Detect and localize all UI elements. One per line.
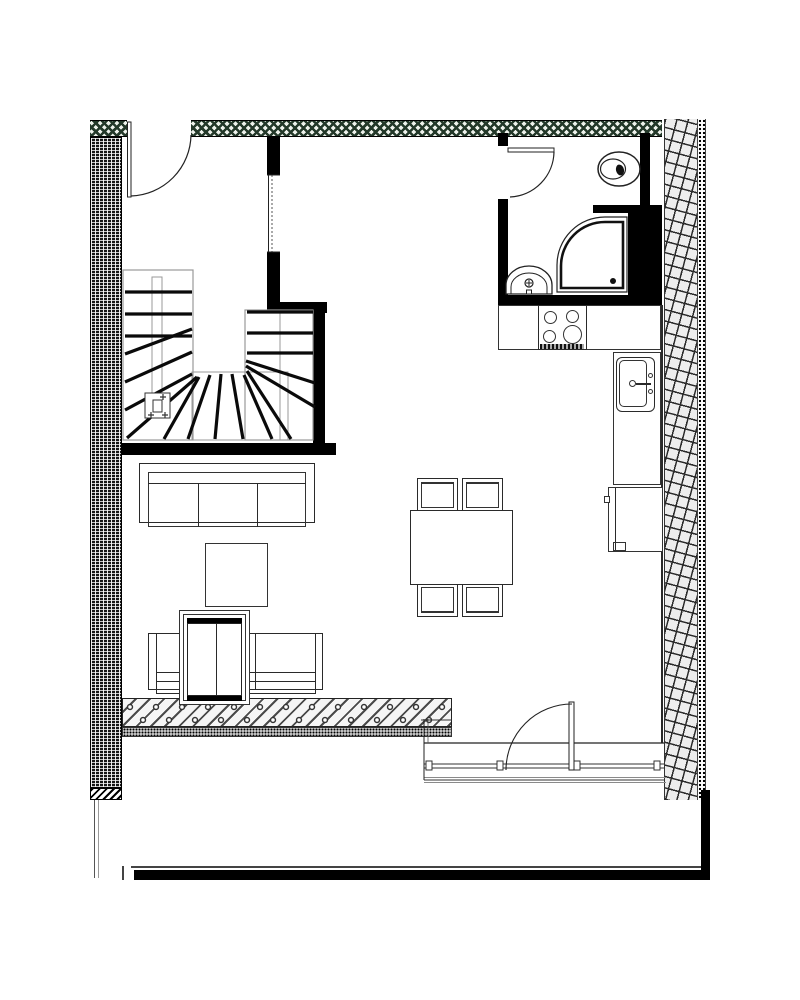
plan-linework	[0, 0, 800, 1000]
floor-plan	[0, 0, 800, 1000]
window-wall	[421, 719, 664, 780]
toilet	[598, 152, 640, 186]
washbasin	[506, 266, 552, 294]
entry-door	[128, 122, 192, 197]
bathroom-door	[508, 148, 554, 197]
hall-window	[266, 175, 281, 252]
stair-marker	[145, 393, 170, 418]
shower	[557, 217, 627, 292]
shower-drain	[610, 278, 616, 284]
staircase	[123, 270, 315, 440]
balcony-door	[506, 702, 574, 770]
